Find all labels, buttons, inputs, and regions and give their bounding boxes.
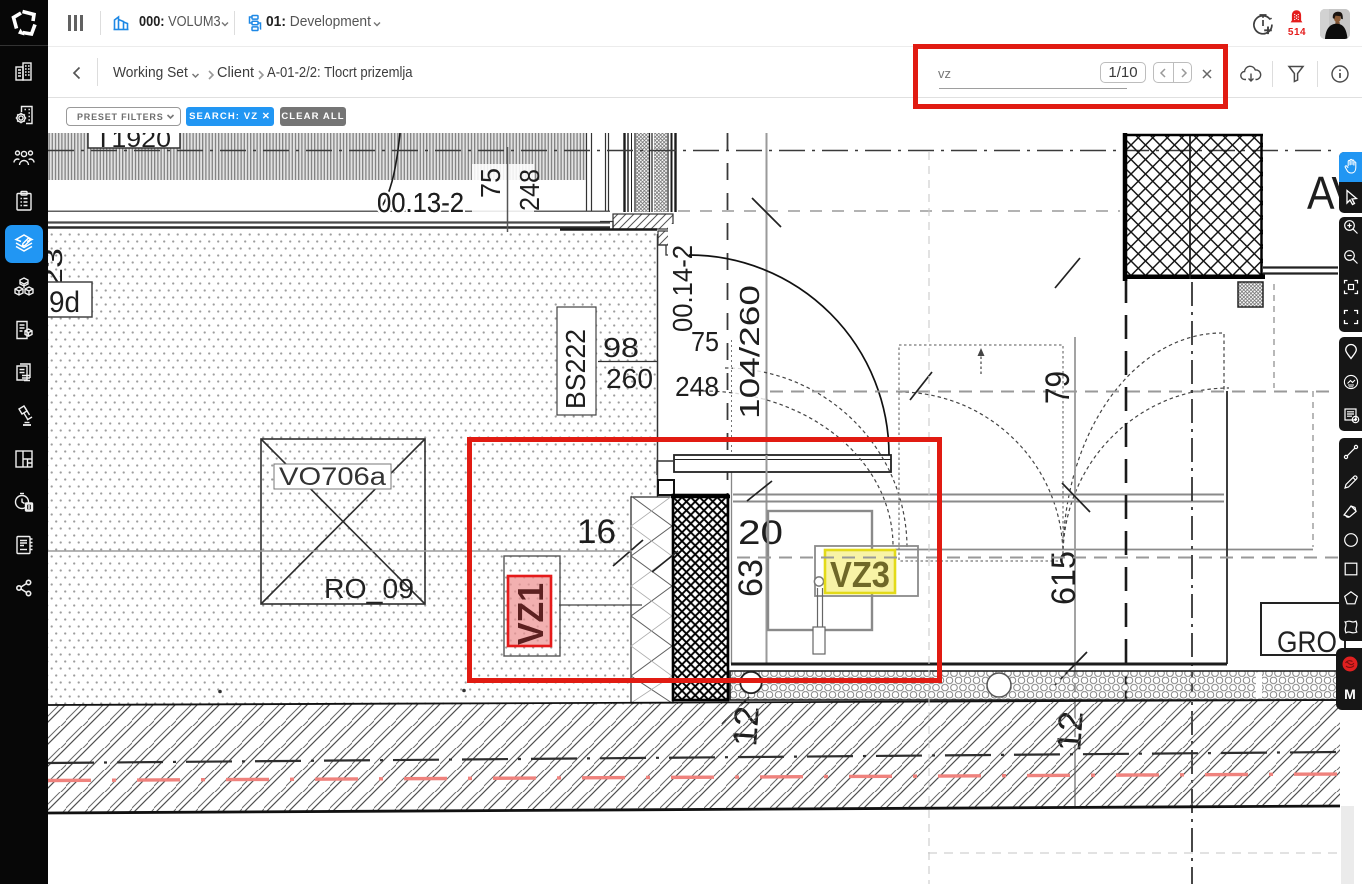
svg-text:VO706a: VO706a (279, 463, 386, 491)
svg-text:104/260: 104/260 (734, 285, 765, 419)
svg-text:615: 615 (1045, 551, 1083, 605)
svg-text:GRO: GRO (1277, 626, 1337, 659)
svg-text:9d: 9d (49, 286, 80, 319)
svg-text:BS222: BS222 (560, 329, 591, 409)
svg-text:RO_09: RO_09 (324, 573, 414, 604)
svg-text:79: 79 (1039, 371, 1077, 404)
svg-text:00.14-2: 00.14-2 (667, 245, 698, 332)
svg-text:98: 98 (603, 332, 639, 363)
svg-text:75: 75 (691, 326, 719, 357)
svg-text:248: 248 (675, 371, 719, 402)
svg-text:75: 75 (475, 168, 506, 198)
svg-text:248: 248 (514, 169, 545, 211)
svg-text:260: 260 (606, 363, 653, 394)
svg-text:00.13-2: 00.13-2 (377, 187, 464, 218)
